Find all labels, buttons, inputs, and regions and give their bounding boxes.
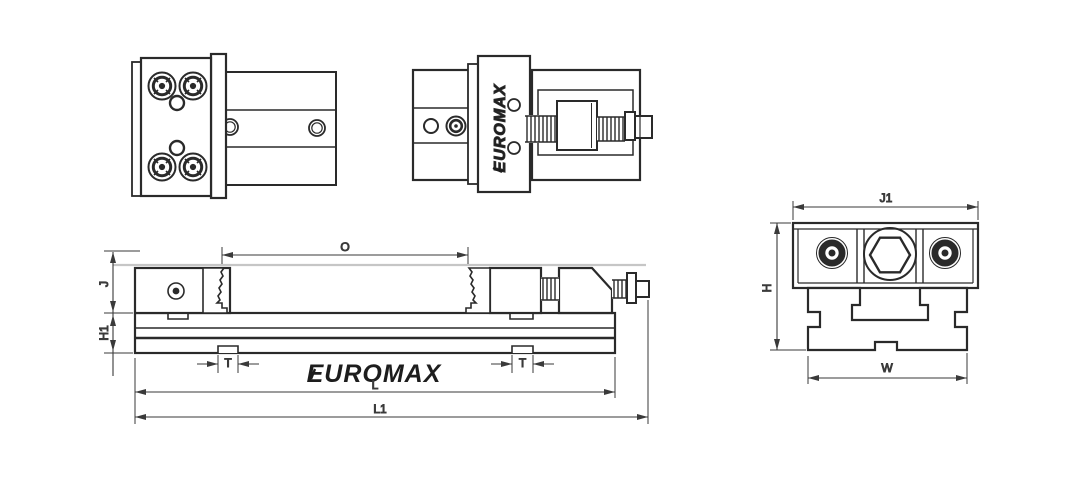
- end-screw-icon: [817, 238, 848, 269]
- jaw-hole: [508, 99, 520, 111]
- vise-technical-drawing-page: EUROMAX EUROMAX: [0, 0, 1080, 481]
- dimension-label-jaw-height: J: [97, 281, 111, 287]
- dimension-label-overall-length: L1: [373, 402, 387, 416]
- top-view-assembly: EUROMAX: [413, 56, 652, 192]
- dimension-label-slot-width: T: [224, 356, 232, 370]
- dimension-label-body-length: L: [372, 378, 379, 392]
- dimension-label-base-height: H1: [97, 325, 111, 341]
- hex-socket: [870, 238, 910, 273]
- screw-collar: [625, 112, 635, 140]
- end-screw-icon: [930, 238, 961, 269]
- base-body-outline: [135, 313, 615, 353]
- socket-screw-icon: [149, 73, 176, 100]
- dowel-hole: [170, 96, 184, 110]
- dimension-label-opening: O: [340, 240, 349, 254]
- end-view: [793, 223, 978, 350]
- jaw-plate-left-strip: [132, 62, 141, 196]
- dowel-hole: [170, 141, 184, 155]
- rail-outline: [226, 72, 336, 185]
- jaw-plate-strip: [468, 64, 478, 184]
- alignment-key: [218, 346, 238, 353]
- screw-top: [447, 117, 466, 136]
- jaw-plate-edge-strip: [211, 54, 226, 198]
- technical-drawing: EUROMAX EUROMAX: [0, 0, 1080, 481]
- movable-jaw-block: [490, 268, 541, 313]
- dimension-J-H1: J H1: [97, 251, 140, 376]
- dimension-J1: J1: [793, 191, 978, 220]
- brand-logo-vertical: EUROMAX: [492, 83, 509, 172]
- socket-screw-icon: [149, 154, 176, 181]
- base-profile-outline: [808, 288, 967, 350]
- alignment-key: [512, 346, 533, 353]
- dimension-label-base-width: W: [881, 361, 893, 375]
- screw-nut-block-side: [559, 268, 612, 313]
- dimension-O: O: [222, 240, 468, 264]
- end-block-outline: [413, 70, 472, 180]
- brand-text-vertical: EUROMAX: [492, 83, 509, 172]
- screw-drive-end: [635, 116, 652, 138]
- movable-jaw-insert: [466, 268, 490, 313]
- dimension-W: W: [808, 353, 967, 384]
- dimension-label-top-width: J1: [880, 191, 893, 205]
- dimension-T-left: T: [197, 355, 259, 373]
- dimension-T-right: T: [491, 355, 554, 373]
- side-view: [135, 268, 649, 353]
- dimension-label-overall-height: H: [760, 284, 774, 293]
- dimension-label-slot-width: T: [519, 356, 527, 370]
- screw-collar-side: [627, 273, 636, 303]
- screw-drive-end-side: [636, 281, 649, 297]
- socket-screw-icon: [180, 73, 207, 100]
- jaw-hole: [508, 142, 520, 154]
- socket-screw-icon: [180, 154, 207, 181]
- top-view-fixed-jaw: [132, 54, 336, 198]
